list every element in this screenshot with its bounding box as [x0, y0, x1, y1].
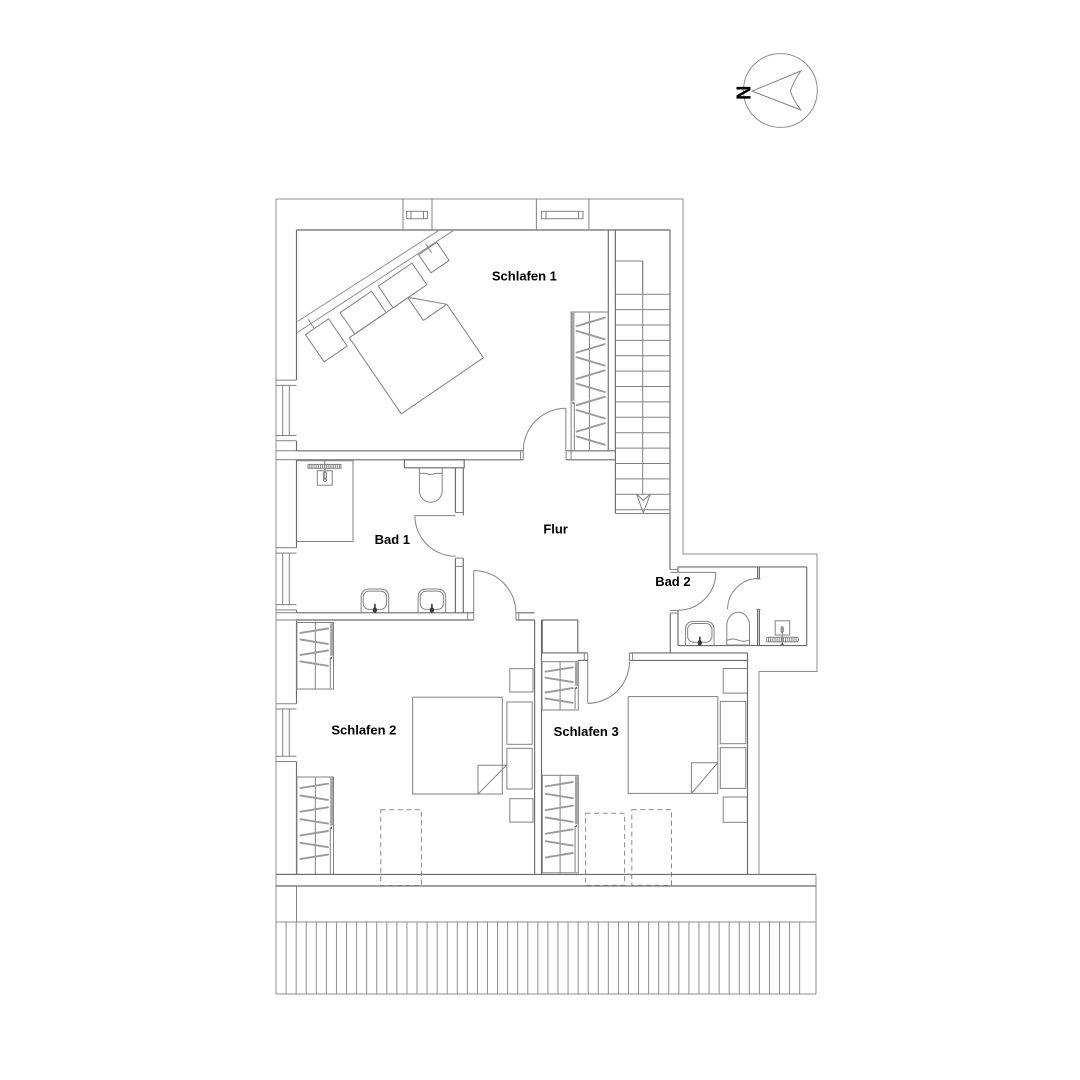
svg-text:Schlafen 3: Schlafen 3	[554, 724, 619, 739]
svg-text:Flur: Flur	[543, 522, 568, 537]
svg-text:N: N	[734, 86, 756, 100]
svg-text:Bad 1: Bad 1	[375, 532, 410, 547]
svg-text:Schlafen 1: Schlafen 1	[492, 268, 557, 283]
svg-text:Schlafen 2: Schlafen 2	[331, 722, 396, 737]
svg-text:Bad 2: Bad 2	[655, 574, 690, 589]
